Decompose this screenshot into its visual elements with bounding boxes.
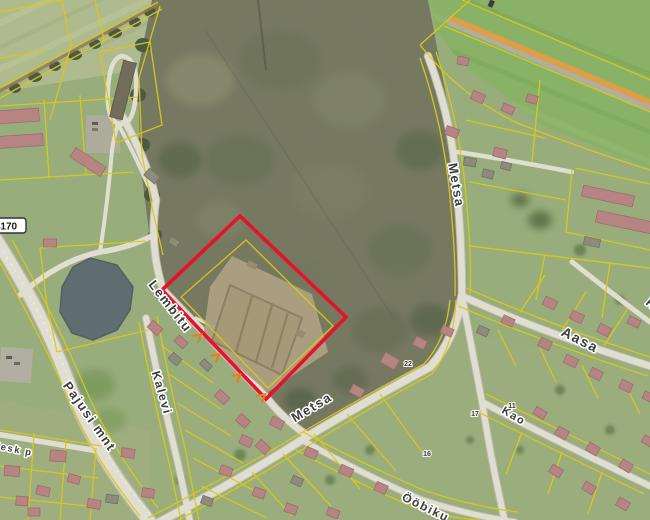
house-building <box>50 450 67 462</box>
map-viewport[interactable]: LembituKaleviPajusi mntMetsaMetsaAasaKao… <box>0 0 650 520</box>
road-number-badge-layer: 4170 <box>0 218 26 233</box>
outbuilding <box>463 157 476 167</box>
map-canvas[interactable]: LembituKaleviPajusi mntMetsaMetsaAasaKao… <box>0 0 650 520</box>
house-number-label: 17 <box>471 411 479 418</box>
house-building <box>44 239 57 247</box>
house-building <box>4 465 20 476</box>
house-number-label: 11 <box>508 403 516 410</box>
outbuilding <box>106 494 119 504</box>
house-building <box>121 448 135 459</box>
house-building <box>16 496 29 506</box>
house-building <box>141 488 154 499</box>
house-number-label: 22 <box>404 361 412 368</box>
house-building <box>457 56 469 66</box>
road-number-text: 4170 <box>0 222 18 233</box>
house-building <box>28 508 40 516</box>
house-building <box>0 108 39 124</box>
house-building <box>87 498 101 509</box>
house-number-label: 16 <box>423 451 431 458</box>
